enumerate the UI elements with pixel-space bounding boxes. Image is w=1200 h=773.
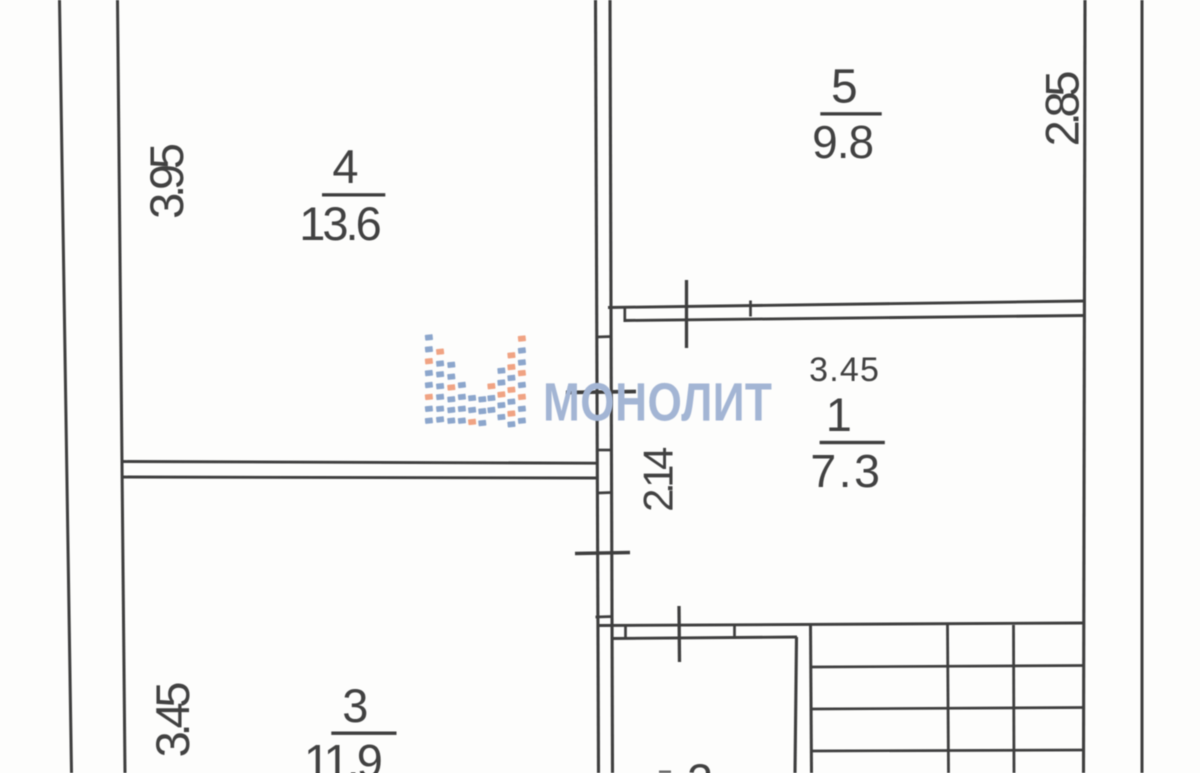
svg-text:5: 5 bbox=[831, 61, 858, 114]
svg-text:11.9: 11.9 bbox=[304, 735, 381, 773]
svg-text:3.45: 3.45 bbox=[809, 351, 880, 389]
svg-text:7.3: 7.3 bbox=[810, 445, 882, 497]
svg-text:2.14: 2.14 bbox=[635, 447, 682, 512]
svg-text:3.45: 3.45 bbox=[146, 683, 199, 758]
svg-text:3.95: 3.95 bbox=[140, 144, 193, 219]
svg-text:13.6: 13.6 bbox=[299, 197, 380, 250]
svg-text:МОНОЛИТ: МОНОЛИТ bbox=[543, 372, 772, 432]
svg-text:3: 3 bbox=[342, 679, 368, 732]
svg-text:1: 1 bbox=[826, 388, 852, 441]
svg-text:2: 2 bbox=[687, 754, 713, 773]
svg-text:9.8: 9.8 bbox=[812, 116, 873, 168]
svg-text:4: 4 bbox=[332, 140, 358, 193]
svg-text:2.85: 2.85 bbox=[1036, 72, 1089, 147]
